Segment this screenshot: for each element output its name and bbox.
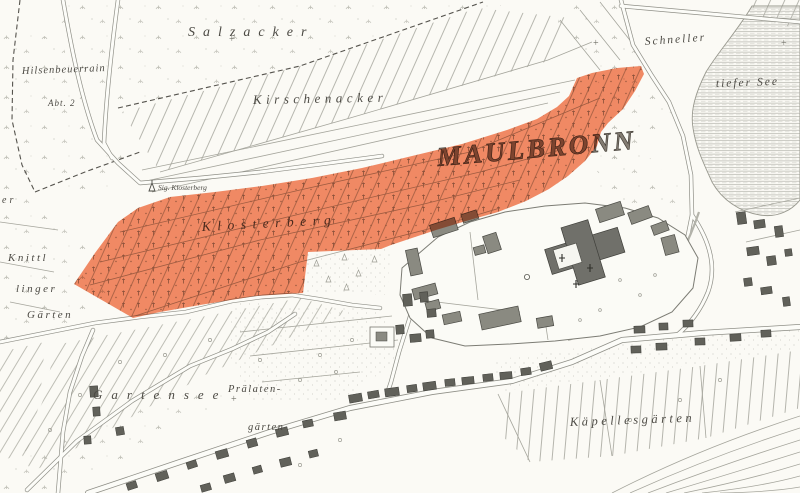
- map-svg: Salzacker Hilsenbeuerrain Abt. 2 Kirsche…: [0, 0, 800, 493]
- label-sig-klosterberg: Sig. Klosterberg: [158, 183, 207, 192]
- label-tiefer-see: tiefer See: [716, 76, 779, 90]
- label-knittl-1: Knittl: [7, 252, 48, 264]
- label-knittl-3: Gärten: [27, 309, 73, 321]
- label-abt2: Abt. 2: [47, 98, 76, 108]
- label-gartensee: Gartensee: [93, 387, 227, 402]
- walled-garden: [370, 327, 394, 347]
- historic-map-canvas: Salzacker Hilsenbeuerrain Abt. 2 Kirsche…: [0, 0, 800, 493]
- label-er-fragment: er: [2, 195, 16, 206]
- survey-cross-icon: +: [229, 34, 235, 45]
- label-salzacker: Salzacker: [188, 25, 314, 40]
- survey-cross-icon: +: [231, 394, 237, 405]
- label-kirschenacker: Kirschenacker: [252, 90, 388, 107]
- label-praelaten-2: gärten: [248, 422, 284, 433]
- survey-cross-icon: +: [593, 38, 599, 49]
- survey-cross-icon: +: [781, 38, 787, 49]
- label-knittl-2: linger: [16, 283, 57, 295]
